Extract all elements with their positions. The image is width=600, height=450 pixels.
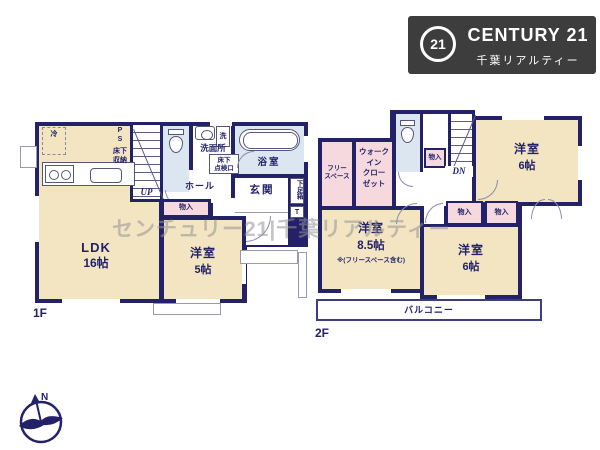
- bedroom6a-size: 6帖: [489, 160, 565, 174]
- floor2-label: 2F: [315, 326, 345, 341]
- stairs-2f: [448, 114, 472, 172]
- bedroom6b-size: 6帖: [441, 261, 501, 275]
- window-bath-right: [304, 136, 308, 162]
- bedroom6b-name: 洋室: [441, 243, 501, 258]
- stairs-up-label: UP: [133, 187, 160, 198]
- ldk-size: 16帖: [56, 256, 136, 271]
- compass-north-label: N: [41, 392, 48, 403]
- washroom-label: 洗面所: [192, 143, 234, 154]
- bedroom5-size: 5帖: [173, 264, 233, 278]
- logo-brand-text: CENTURY 21: [464, 25, 592, 46]
- stairs-down-label: DN: [445, 166, 473, 177]
- closet-2f-hall: 物入: [424, 148, 446, 168]
- north-compass-icon: N: [10, 388, 72, 450]
- balcony-label: バルコニー: [318, 305, 540, 316]
- bedroom5-name: 洋室: [173, 246, 233, 261]
- watermark-text: センチュリー21|千葉リアルティー: [112, 213, 512, 243]
- floorplan-canvas: 21 CENTURY 21 千葉リアルティー UP 冷 P S 床下 収納 洗 …: [0, 0, 600, 450]
- inspection-hatch-label: 床下 点検口: [210, 157, 238, 173]
- window-ldk-bottom: [62, 299, 120, 303]
- closet-2f-hall-label: 物入: [426, 154, 444, 162]
- washer-label: 洗: [217, 133, 229, 142]
- shoe-box-label: 下足箱: [294, 180, 302, 200]
- approach-strip: [298, 252, 307, 298]
- fridge-space: 冷: [42, 127, 66, 155]
- bedroom85-note: ※(フリースペース含む): [318, 257, 424, 265]
- window-6a-right: [578, 146, 582, 180]
- stove-icon: [45, 165, 74, 183]
- walk-in-closet-label: ウォーク イン クロー ゼット: [356, 147, 392, 189]
- underfloor-storage-label: 床下 収納: [104, 148, 136, 166]
- floor1-label: 1F: [33, 306, 63, 321]
- bedroom6a-name: 洋室: [489, 142, 565, 157]
- kitchen-sink-icon: [90, 168, 122, 183]
- window-ldk-left: [35, 196, 39, 242]
- balcony: バルコニー: [316, 299, 542, 321]
- terrace-step: [153, 303, 221, 315]
- bathtub-icon: [239, 129, 300, 151]
- free-space-label: フリー スペース: [320, 165, 354, 181]
- fridge-label: 冷: [43, 131, 65, 140]
- window-6a-top: [502, 116, 544, 120]
- closet-1f-label: 物入: [164, 204, 208, 213]
- window-85-bottom: [341, 289, 391, 293]
- hall-label: ホール: [178, 181, 222, 192]
- inspection-hatch: 床下 点検口: [209, 154, 239, 174]
- toilet-tank-icon: [168, 129, 184, 135]
- entrance-porch-step: [240, 250, 298, 264]
- century21-logo: 21 CENTURY 21 千葉リアルティー: [408, 16, 596, 74]
- side-door-bump: [20, 146, 37, 168]
- washstand-icon: [195, 126, 215, 140]
- toilet-2f-tank-icon: [400, 120, 415, 126]
- entrance-label: 玄関: [240, 184, 284, 197]
- window-washroom-top: [210, 122, 232, 126]
- logo-subtitle: 千葉リアルティー: [464, 52, 592, 68]
- shoe-box: 下足箱: [290, 178, 304, 204]
- century21-circle-icon: 21: [420, 26, 456, 62]
- pipe-space-label: P S: [110, 127, 130, 145]
